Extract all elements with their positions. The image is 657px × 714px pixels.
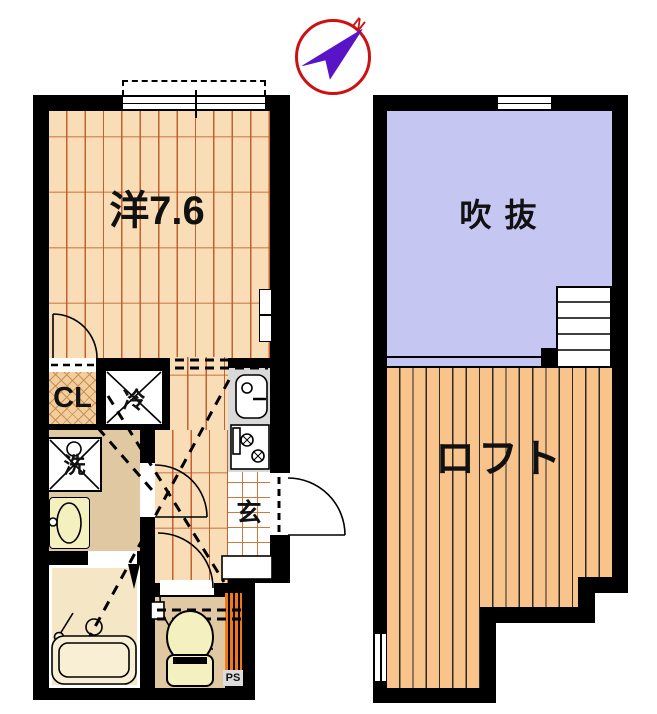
balcony-outline [122,80,266,96]
window-mullion [260,314,271,316]
closet-label: CL [49,374,96,422]
window-mullion [498,103,551,105]
bathroom-door-gap [88,551,137,566]
floor-plan-canvas: N 洋7.6 CL 冷 洗 玄 PS 吹 抜 ロフト [0,0,657,714]
stairs [556,286,612,368]
washroom-door-gap [140,463,155,517]
washer-label: 洗 [47,448,102,480]
void-label: 吹 抜 [399,192,599,234]
loft-floor [387,368,612,688]
corridor-floor-lower [155,430,228,583]
pipe-space-label: PS [223,670,243,686]
loft-side-window [374,633,387,682]
void-top-window [497,96,552,110]
main-room-label: 洋7.6 [52,183,262,231]
corridor-floor-upper [170,357,228,430]
main-room-top-window [122,96,266,110]
bathroom-area [49,565,140,688]
window-center-tick [195,90,197,118]
window-mullion [380,634,382,681]
window-mullion [123,103,265,105]
toilet-door-gap [160,580,214,595]
main-room-side-window [259,289,272,342]
entrance-door-gap [270,473,290,535]
refrigerator-label: 冷 [104,378,164,418]
washbasin-unit [49,497,90,549]
entrance-door-arc [288,478,345,535]
closet-door-strip [49,358,96,372]
entrance-label: 玄 [228,492,270,530]
kitchen-counter-area [228,368,270,472]
loft-handrail [387,356,543,368]
toilet-room [155,597,225,688]
pipe-space-shaft [225,593,242,673]
loft-label: ロフト [397,431,602,479]
